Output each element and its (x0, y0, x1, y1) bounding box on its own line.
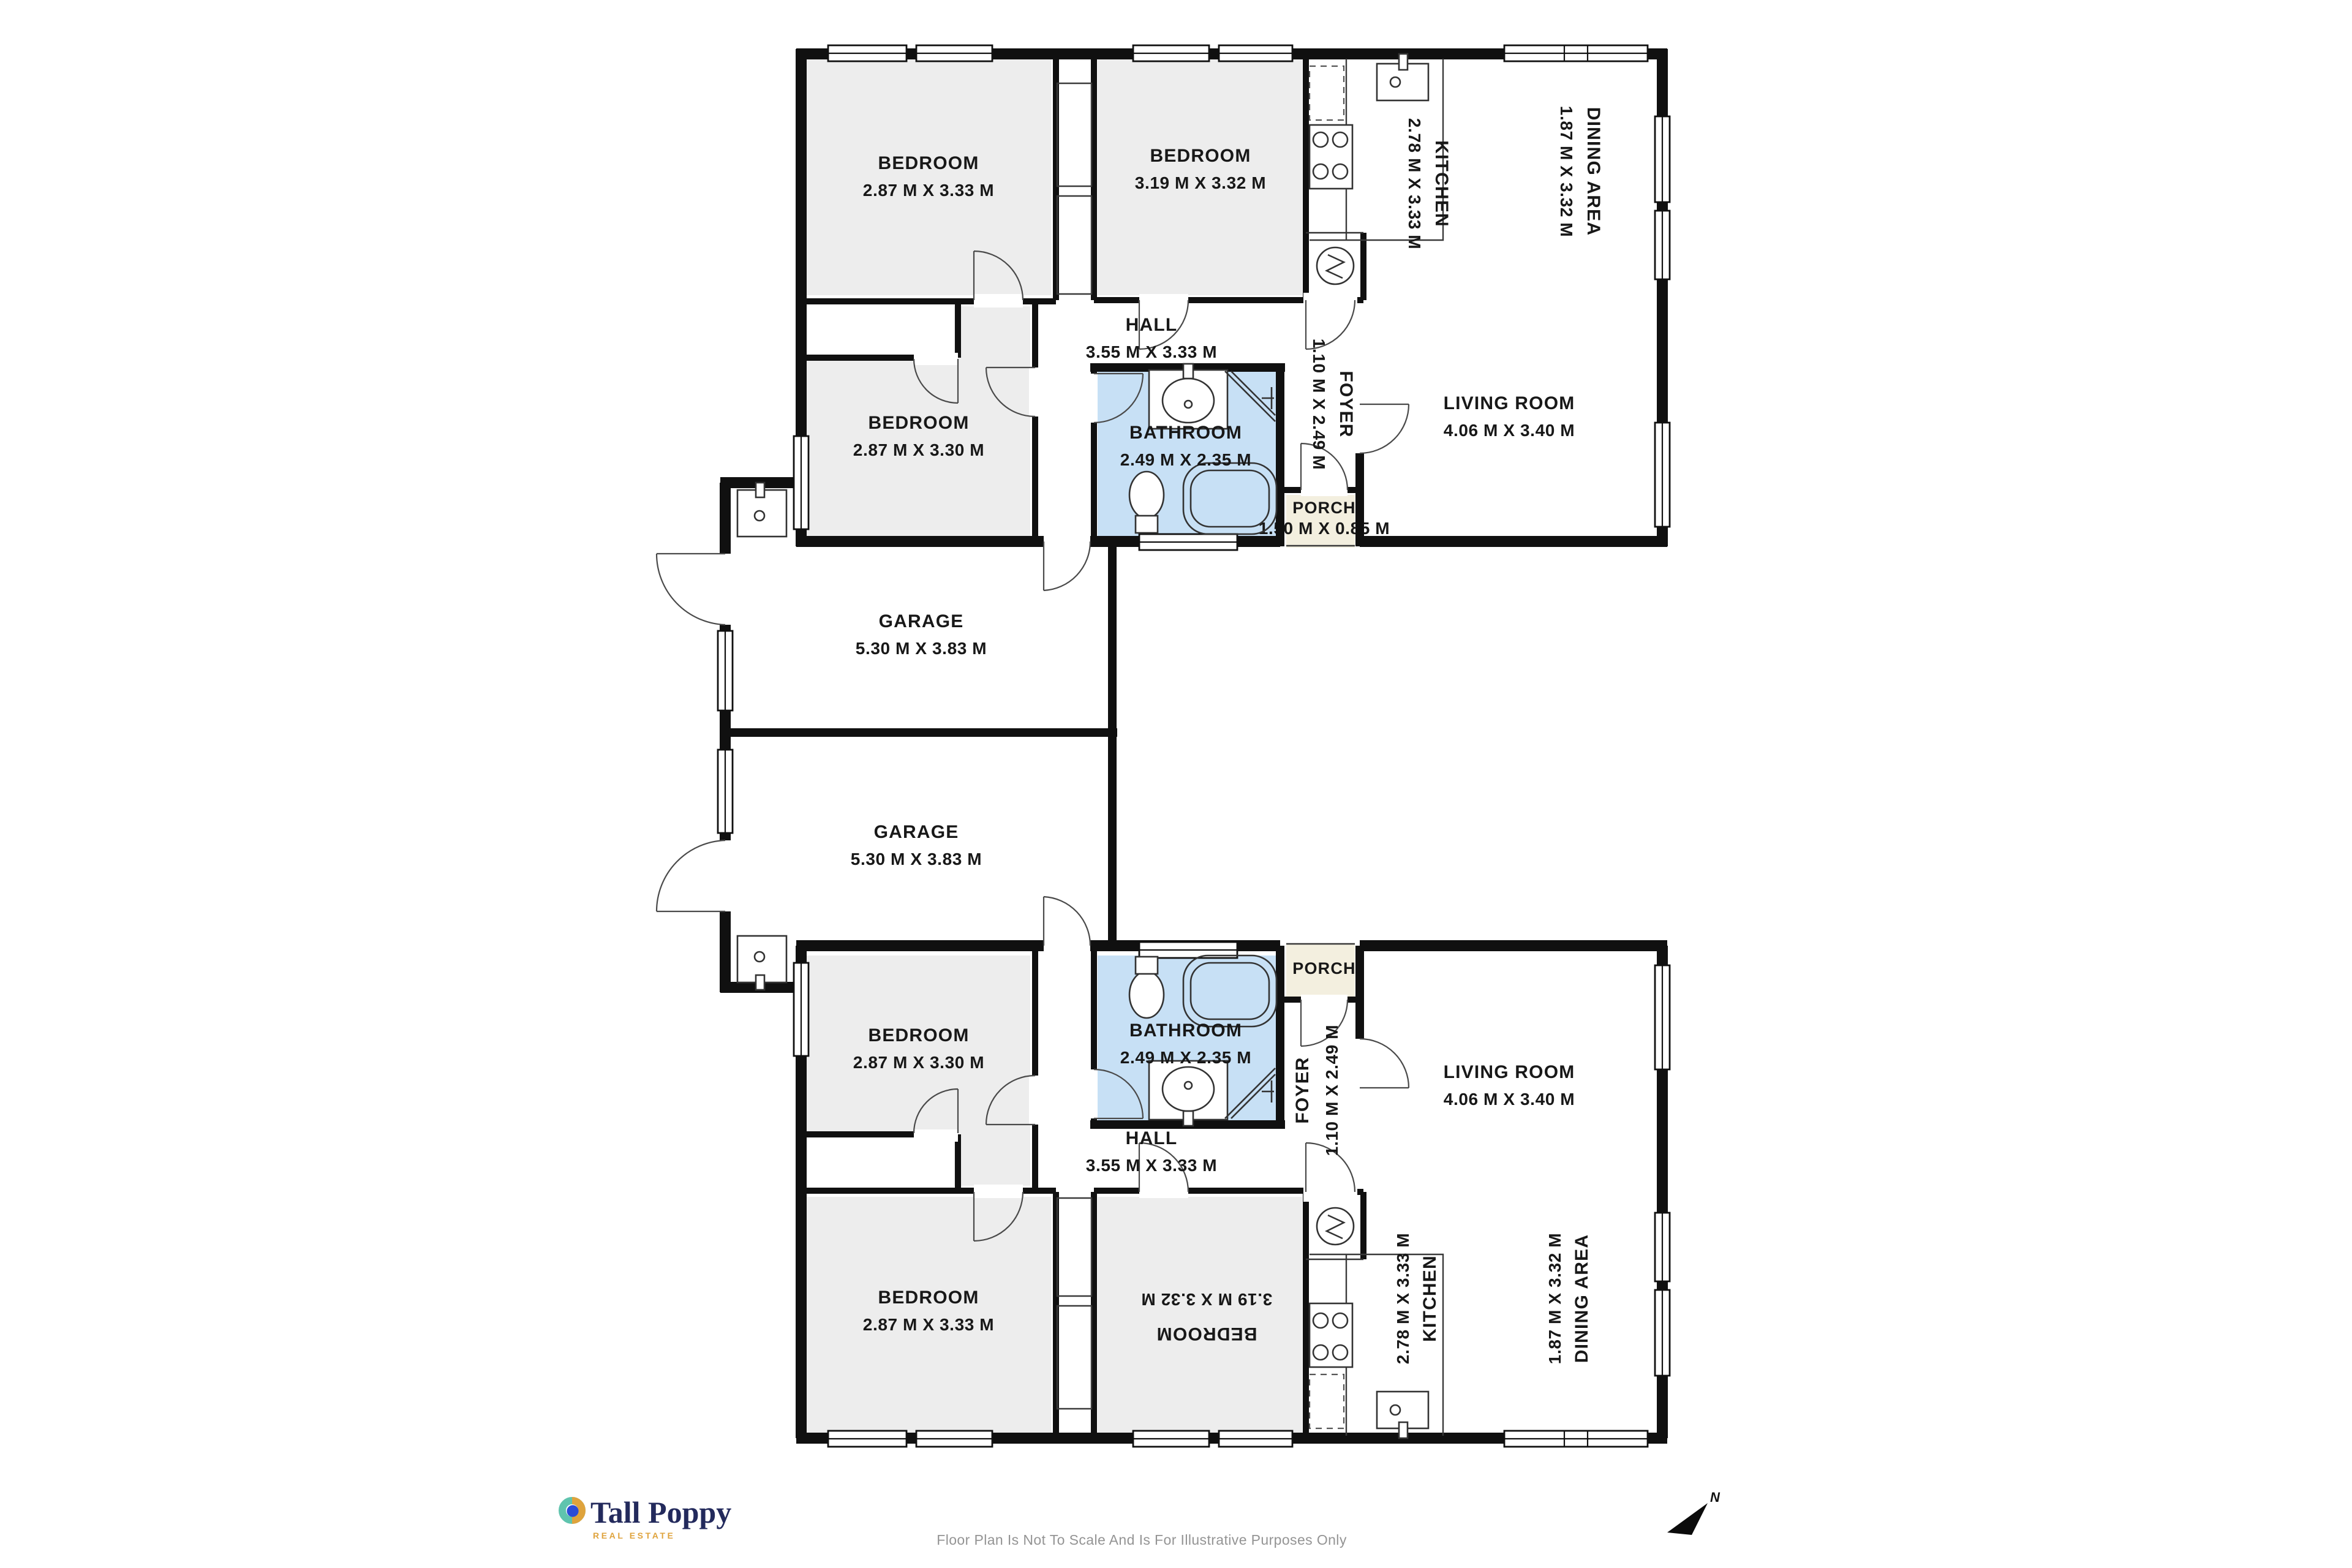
room-label-bedroom-a: BEDROOM (878, 153, 979, 173)
room-label-garage-upper-dims: 5.30 M X 3.83 M (856, 639, 987, 658)
room-label-porch-lower: PORCH (1292, 959, 1356, 978)
room-label-foyer-upper-dims: 1.10 M X 2.49 M (1310, 339, 1329, 470)
room-label-dining-upper-dims: 1.87 M X 3.32 M (1557, 106, 1576, 237)
room-label-bathroom-lower-dims: 2.49 M X 2.35 M (1120, 1048, 1251, 1067)
room-label-bathroom-upper: BATHROOM (1129, 423, 1242, 443)
room-label-hall-lower: HALL (1126, 1128, 1178, 1148)
closet-lower (805, 1138, 954, 1187)
room-label-foyer-lower: FOYER (1292, 1057, 1313, 1123)
brand-tagline: REAL ESTATE (593, 1531, 676, 1540)
room-label-bedroom-c-dims: 2.87 M X 3.30 M (853, 440, 984, 459)
room-label-dining-lower-dims: 1.87 M X 3.32 M (1545, 1233, 1564, 1364)
room-label-kitchen-upper-dims: 2.78 M X 3.33 M (1405, 118, 1424, 249)
fridge-space-upper (1310, 66, 1344, 120)
room-label-garage-lower-dims: 5.30 M X 3.83 M (851, 850, 982, 869)
vanity-sink-lower (1149, 1061, 1227, 1126)
room-label-bedroom-b-dims: 3.19 M X 3.32 M (1135, 173, 1266, 192)
room-bedroom-f-lower (1098, 1197, 1302, 1433)
room-label-bedroom-b: BEDROOM (1150, 146, 1251, 166)
floor-plan-page: 1.50 M X 0.85 M (0, 0, 2352, 1568)
room-label-bedroom-f: BEDROOM (1156, 1324, 1257, 1344)
fridge-space-lower (1310, 1374, 1344, 1428)
room-label-bedroom-d-dims: 2.87 M X 3.30 M (853, 1053, 984, 1072)
room-label-bedroom-c: BEDROOM (868, 413, 969, 433)
room-label-bedroom-d: BEDROOM (868, 1025, 969, 1046)
room-label-garage-lower: GARAGE (874, 822, 959, 842)
room-fills (805, 59, 1355, 1433)
room-label-porch-upper: PORCH (1292, 499, 1356, 517)
room-label-living-lower-dims: 4.06 M X 3.40 M (1444, 1090, 1575, 1109)
room-bedroom-a-upper (806, 59, 1051, 295)
room-label-kitchen-upper: KITCHEN (1431, 140, 1452, 227)
footer: Tall Poppy REAL ESTATE Floor Plan Is Not… (562, 1490, 1721, 1559)
vanity-sink-upper (1149, 364, 1227, 429)
room-label-bathroom-lower: BATHROOM (1129, 1020, 1242, 1041)
room-label-foyer-upper: FOYER (1336, 371, 1356, 437)
brand-name: Tall Poppy (590, 1495, 731, 1529)
room-label-dining-lower: DINING AREA (1572, 1234, 1592, 1363)
room-label-bedroom-f-dims: 3.19 M X 3.32 M (1141, 1290, 1272, 1309)
room-label-bedroom-e-dims: 2.87 M X 3.33 M (863, 1315, 994, 1334)
room-label-living-upper-dims: 4.06 M X 3.40 M (1444, 421, 1575, 440)
room-label-dining-upper: DINING AREA (1583, 107, 1604, 236)
north-compass: N (1667, 1490, 1721, 1559)
laundry-sink-garage-lower (737, 936, 786, 990)
room-label-hall-upper: HALL (1126, 315, 1178, 335)
floor-plan-canvas: 1.50 M X 0.85 M (0, 0, 2352, 1568)
brand-logo-icon (562, 1501, 582, 1520)
closet-shelves (1057, 83, 1091, 1409)
brand-logo: Tall Poppy REAL ESTATE (562, 1495, 731, 1540)
room-label-living-upper: LIVING ROOM (1444, 393, 1575, 413)
room-label-hall-upper-dims: 3.55 M X 3.33 M (1086, 342, 1217, 361)
room-label-bedroom-a-dims: 2.87 M X 3.33 M (863, 181, 994, 200)
disclaimer-text: Floor Plan Is Not To Scale And Is For Il… (937, 1532, 1347, 1548)
room-label-kitchen-lower: KITCHEN (1420, 1255, 1440, 1342)
room-label-hall-lower-dims: 3.55 M X 3.33 M (1086, 1156, 1217, 1175)
porch-edges (1286, 546, 1355, 944)
laundry-sink-garage-upper (737, 483, 786, 537)
room-label-kitchen-lower-dims: 2.78 M X 3.33 M (1393, 1233, 1412, 1364)
room-label-garage-upper: GARAGE (879, 611, 964, 631)
north-arrow-icon (1667, 1503, 1708, 1559)
room-label-foyer-lower-dims: 1.10 M X 2.49 M (1322, 1025, 1341, 1156)
room-label-bedroom-e: BEDROOM (878, 1287, 979, 1308)
room-label-living-lower: LIVING ROOM (1444, 1062, 1575, 1082)
compass-label: N (1710, 1490, 1721, 1505)
closet-upper (805, 305, 954, 354)
room-label-bathroom-upper-dims: 2.49 M X 2.35 M (1120, 450, 1251, 469)
